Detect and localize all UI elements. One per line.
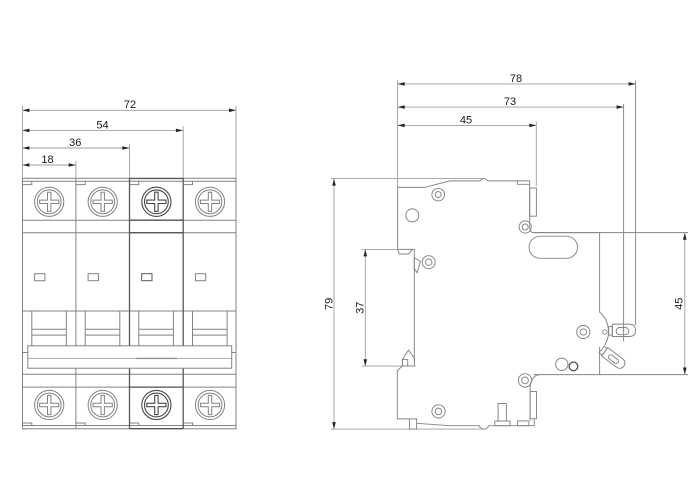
svg-text:79: 79 <box>324 298 336 310</box>
svg-text:72: 72 <box>124 99 136 111</box>
svg-text:45: 45 <box>674 298 686 310</box>
svg-text:73: 73 <box>504 96 516 108</box>
svg-text:54: 54 <box>96 119 108 131</box>
svg-text:78: 78 <box>510 73 522 85</box>
svg-text:18: 18 <box>41 154 53 166</box>
svg-text:37: 37 <box>355 302 367 314</box>
svg-text:36: 36 <box>69 137 81 149</box>
svg-text:45: 45 <box>460 114 472 126</box>
